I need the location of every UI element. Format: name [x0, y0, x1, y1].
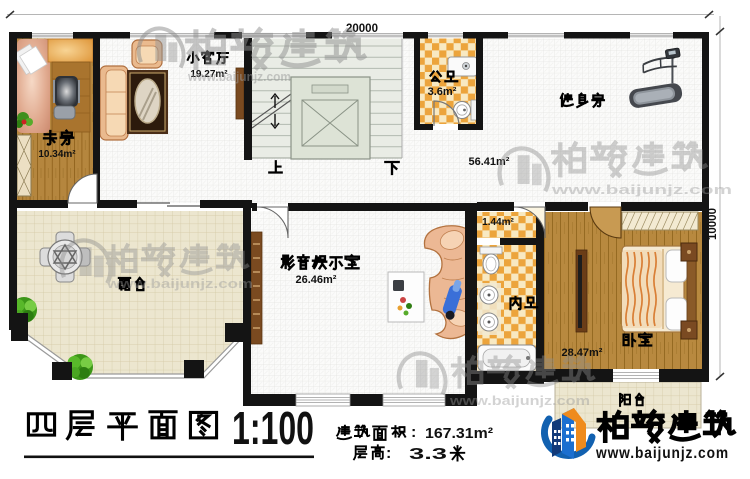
svg-text:167.31m²: 167.31m² — [425, 425, 493, 442]
svg-text:1:100: 1:100 — [232, 402, 314, 454]
svg-text::: : — [411, 424, 416, 441]
svg-text:www.baijunjz.com: www.baijunjz.com — [106, 276, 253, 291]
svg-text:www.baijunjz.com: www.baijunjz.com — [595, 445, 729, 462]
svg-text:3.6m²: 3.6m² — [428, 86, 457, 98]
svg-text::: : — [386, 445, 391, 462]
svg-text:10.34m²: 10.34m² — [38, 149, 76, 160]
svg-text:www.baijunjz.com: www.baijunjz.com — [187, 69, 291, 84]
svg-text:26.46m²: 26.46m² — [296, 274, 337, 286]
svg-text:www.baijunjz.com: www.baijunjz.com — [550, 182, 732, 197]
svg-text:www.baijunjz.com: www.baijunjz.com — [449, 393, 590, 408]
svg-text:3.3: 3.3 — [409, 446, 447, 463]
svg-text:1.44m²: 1.44m² — [482, 217, 514, 228]
svg-text:10000: 10000 — [707, 208, 719, 240]
